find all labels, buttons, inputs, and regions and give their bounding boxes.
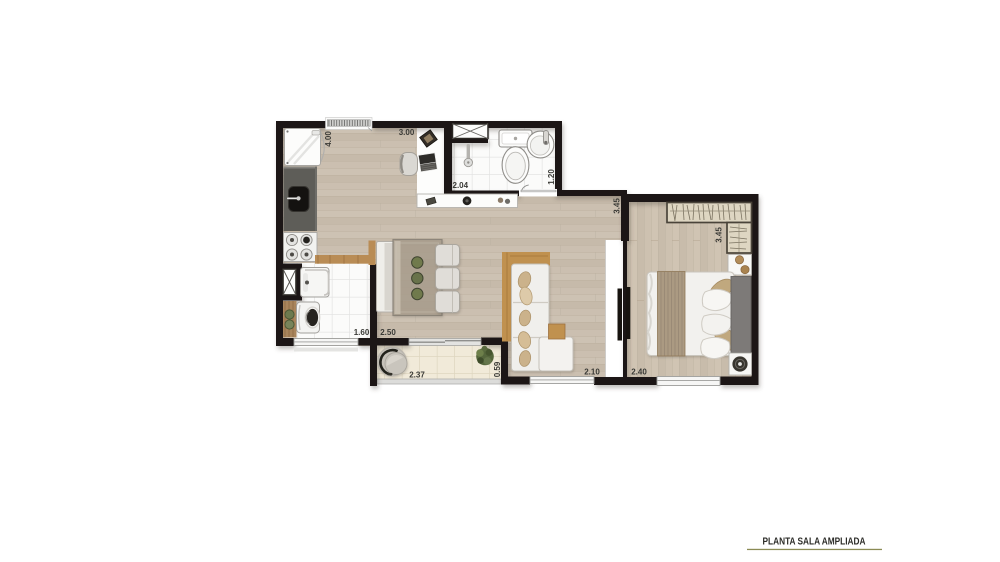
svg-text:3.00: 3.00 bbox=[399, 128, 415, 137]
svg-text:0.59: 0.59 bbox=[493, 361, 502, 377]
svg-text:2.50: 2.50 bbox=[380, 328, 396, 337]
svg-text:3.45: 3.45 bbox=[715, 227, 724, 243]
svg-text:4.00: 4.00 bbox=[324, 131, 333, 147]
svg-text:2.40: 2.40 bbox=[631, 368, 647, 377]
svg-text:2.10: 2.10 bbox=[584, 368, 600, 377]
svg-text:1.20: 1.20 bbox=[547, 169, 556, 185]
svg-text:2.37: 2.37 bbox=[409, 371, 425, 380]
svg-text:2.04: 2.04 bbox=[453, 181, 469, 190]
svg-text:1.60: 1.60 bbox=[354, 328, 370, 337]
svg-text:PLANTA SALA AMPLIADA: PLANTA SALA AMPLIADA bbox=[763, 536, 866, 548]
svg-text:3.45: 3.45 bbox=[613, 198, 622, 214]
